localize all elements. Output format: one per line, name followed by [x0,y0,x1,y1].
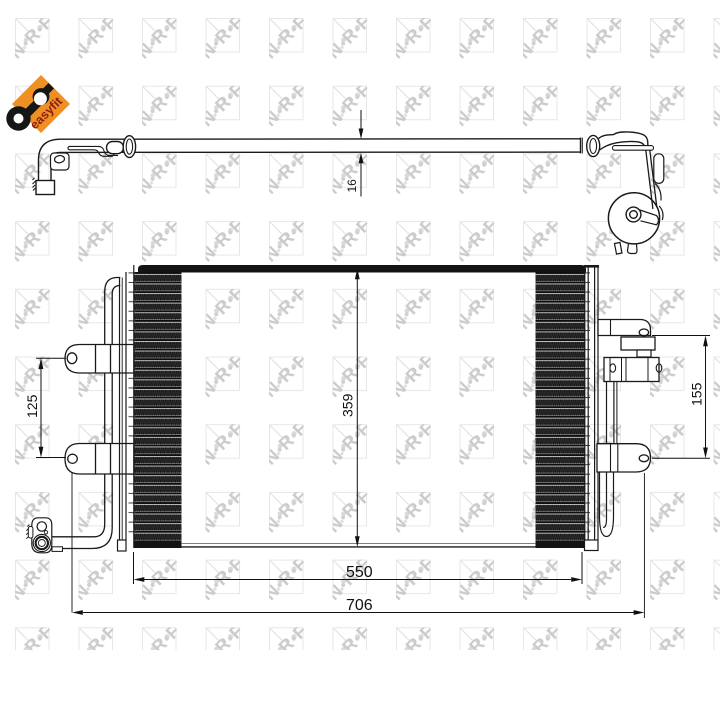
svg-text:550: 550 [346,564,373,581]
svg-text:16: 16 [345,179,359,193]
svg-text:125: 125 [24,394,40,418]
svg-text:155: 155 [689,382,705,406]
svg-text:706: 706 [346,597,373,614]
svg-text:359: 359 [340,393,356,417]
